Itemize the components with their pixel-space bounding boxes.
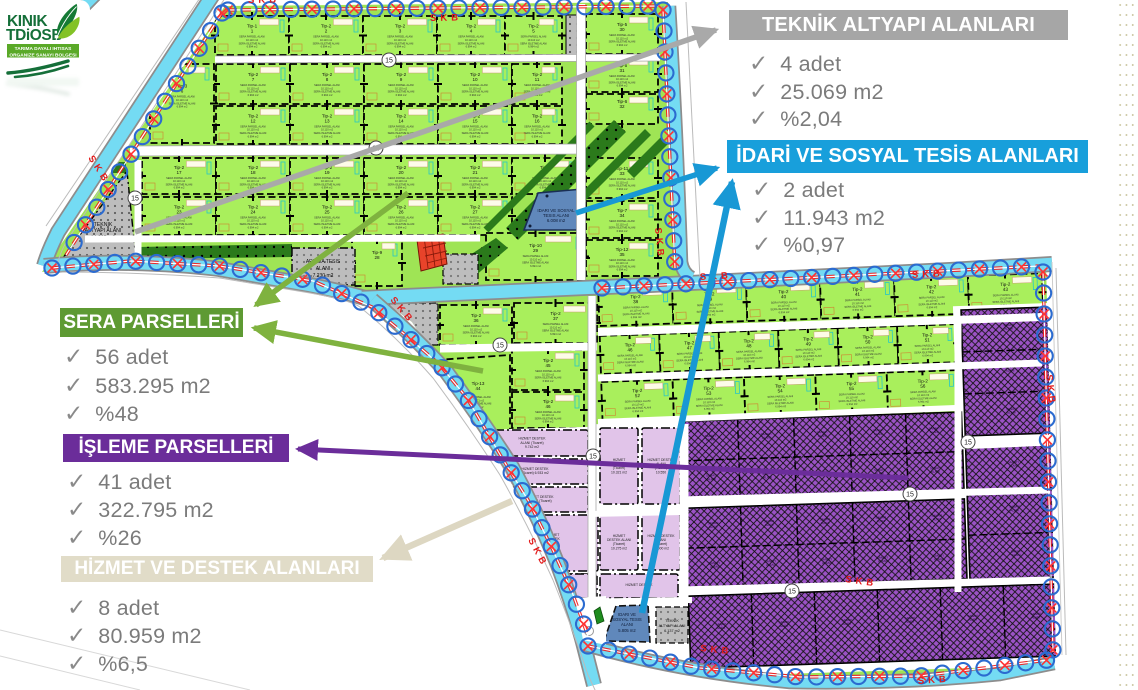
svg-text:17: 17 — [176, 170, 182, 175]
svg-text:ALANI: ALANI — [818, 434, 827, 438]
svg-text:56: 56 — [920, 384, 926, 389]
svg-text:54: 54 — [778, 388, 784, 393]
svg-text:6.994 m2: 6.994 m2 — [321, 45, 332, 49]
svg-text:6.994 m2: 6.994 m2 — [322, 93, 333, 97]
svg-text:ALANI: ALANI — [905, 619, 914, 623]
svg-text:ALANI: ALANI — [930, 430, 939, 434]
svg-text:6.994 m2: 6.994 m2 — [471, 334, 482, 338]
svg-text:6.994 m2: 6.994 m2 — [853, 307, 864, 311]
svg-text:6.994 m2: 6.994 m2 — [543, 420, 554, 424]
svg-text:15: 15 — [496, 343, 504, 350]
svg-text:9.742 m2: 9.742 m2 — [525, 445, 539, 449]
svg-text:46: 46 — [545, 404, 551, 409]
svg-text:SKB: SKB — [912, 268, 945, 281]
svg-text:6.994 m2: 6.994 m2 — [803, 357, 814, 361]
svg-text:43: 43 — [1003, 287, 1009, 292]
svg-text:15: 15 — [472, 118, 478, 123]
svg-text:6.994 m2: 6.994 m2 — [918, 399, 929, 403]
svg-text:10.321 m2: 10.321 m2 — [611, 470, 627, 474]
svg-text:6.994 m2: 6.994 m2 — [248, 93, 259, 97]
svg-text:6.994 m2: 6.994 m2 — [322, 186, 333, 190]
svg-text:ALANI: ALANI — [766, 563, 775, 567]
svg-text:6.994 m2: 6.994 m2 — [926, 305, 937, 309]
svg-text:6.994 m2: 6.994 m2 — [528, 45, 539, 49]
svg-text:6.137 m2: 6.137 m2 — [664, 629, 680, 633]
svg-text:ALANI: ALANI — [821, 521, 830, 525]
svg-text:ALANI: ALANI — [717, 626, 726, 630]
svg-text:ALTYAPI ALANI: ALTYAPI ALANI — [659, 624, 686, 628]
svg-text:34: 34 — [619, 213, 625, 218]
svg-text:ALANI: ALANI — [621, 622, 633, 627]
svg-text:6.994 m2: 6.994 m2 — [322, 225, 333, 229]
svg-text:ALANI: ALANI — [710, 565, 719, 569]
svg-text:30: 30 — [619, 27, 625, 32]
svg-text:10: 10 — [472, 77, 478, 82]
svg-text:6.994 m2: 6.994 m2 — [744, 359, 755, 363]
svg-text:ALANI: ALANI — [316, 266, 330, 272]
svg-text:9: 9 — [400, 77, 403, 82]
svg-text:36: 36 — [473, 318, 479, 323]
svg-text:49: 49 — [806, 341, 812, 346]
svg-text:6.994 m2: 6.994 m2 — [395, 45, 406, 49]
svg-text:7: 7 — [252, 77, 255, 82]
svg-text:ALANI: ALANI — [1004, 326, 1013, 330]
svg-text:SKB: SKB — [248, 0, 280, 6]
svg-text:42: 42 — [929, 289, 935, 294]
svg-text:5.805 m2: 5.805 m2 — [618, 628, 636, 633]
svg-text:ALANI: ALANI — [1010, 508, 1019, 512]
svg-text:(Ticaret) 6.933 m2: (Ticaret) 6.933 m2 — [521, 471, 549, 475]
svg-text:52: 52 — [635, 393, 641, 398]
svg-text:6.994 m2: 6.994 m2 — [625, 363, 636, 367]
svg-text:TDiOSB: TDiOSB — [6, 27, 62, 44]
svg-text:46: 46 — [627, 347, 633, 352]
svg-text:6.994 m2: 6.994 m2 — [863, 355, 874, 359]
svg-text:48: 48 — [746, 343, 752, 348]
svg-text:47: 47 — [687, 345, 693, 350]
svg-text:15: 15 — [589, 454, 597, 461]
svg-text:6.994 m2: 6.994 m2 — [631, 315, 642, 319]
svg-text:ALANI: ALANI — [933, 517, 942, 521]
svg-text:45: 45 — [545, 363, 551, 368]
svg-text:ALANI: ALANI — [877, 519, 886, 523]
svg-text:41: 41 — [855, 292, 861, 297]
svg-text:11: 11 — [535, 77, 540, 82]
svg-text:14: 14 — [398, 118, 404, 123]
svg-text:6.994 m2: 6.994 m2 — [174, 186, 185, 190]
svg-text:ALANI: ALANI — [706, 437, 715, 441]
svg-text:6.994 m2: 6.994 m2 — [617, 187, 628, 191]
svg-text:40: 40 — [781, 294, 787, 299]
svg-text:6.994 m2: 6.994 m2 — [532, 134, 543, 138]
svg-text:19: 19 — [324, 170, 330, 175]
svg-text:6.994 m2: 6.994 m2 — [617, 43, 628, 47]
svg-text:44: 44 — [475, 386, 481, 391]
svg-text:10.275 m2: 10.275 m2 — [611, 546, 627, 550]
svg-text:ALANI: ALANI — [1007, 410, 1016, 414]
svg-text:ALANI: ALANI — [1012, 553, 1021, 557]
svg-text:6.994 m2: 6.994 m2 — [470, 134, 481, 138]
svg-text:6.994 m2: 6.994 m2 — [466, 45, 477, 49]
svg-text:6.994 m2: 6.994 m2 — [617, 268, 628, 272]
svg-text:6.994 m2: 6.994 m2 — [632, 409, 643, 413]
svg-text:ALANI: ALANI — [762, 436, 771, 440]
svg-text:6.994 m2: 6.994 m2 — [470, 186, 481, 190]
svg-text:6.008 m2: 6.008 m2 — [547, 218, 566, 223]
svg-text:38: 38 — [633, 299, 639, 304]
svg-text:TARIMA DAYALI IHTISAS: TARIMA DAYALI IHTISAS — [15, 46, 72, 52]
svg-text:29: 29 — [533, 248, 539, 253]
svg-text:13: 13 — [324, 118, 330, 123]
svg-text:ALANI: ALANI — [763, 475, 772, 479]
svg-text:15: 15 — [131, 196, 139, 203]
svg-text:6.994 m2: 6.994 m2 — [396, 93, 407, 97]
svg-text:10.550: 10.550 — [656, 470, 666, 474]
svg-text:55: 55 — [849, 386, 855, 391]
svg-text:ALANI: ALANI — [931, 469, 940, 473]
svg-text:25: 25 — [324, 209, 330, 214]
svg-text:ALANI: ALANI — [1031, 615, 1040, 619]
svg-text:6.994 m2: 6.994 m2 — [543, 379, 554, 383]
svg-text:31: 31 — [619, 68, 625, 73]
svg-text:6.994 m2: 6.994 m2 — [704, 406, 715, 410]
svg-text:6.994 m2: 6.994 m2 — [248, 225, 259, 229]
svg-text:ALANI: ALANI — [822, 561, 831, 565]
svg-text:53: 53 — [706, 391, 712, 396]
svg-text:26: 26 — [398, 209, 404, 214]
svg-text:4: 4 — [470, 29, 473, 34]
svg-text:6.994 m2: 6.994 m2 — [775, 404, 786, 408]
svg-text:24: 24 — [250, 209, 256, 214]
svg-text:2: 2 — [325, 29, 328, 34]
svg-text:6.994 m2: 6.994 m2 — [922, 353, 933, 357]
svg-text:27: 27 — [472, 209, 478, 214]
svg-text:6.994 m2: 6.994 m2 — [550, 332, 561, 336]
svg-text:6.994 m2: 6.994 m2 — [530, 264, 541, 268]
svg-text:3: 3 — [399, 29, 402, 34]
svg-text:1: 1 — [251, 29, 254, 34]
svg-text:15: 15 — [788, 589, 796, 596]
svg-text:28: 28 — [374, 255, 380, 260]
svg-text:6.994 m2: 6.994 m2 — [396, 225, 407, 229]
svg-text:6.994 m2: 6.994 m2 — [174, 225, 185, 229]
svg-text:15: 15 — [385, 58, 393, 65]
svg-text:ALANI: ALANI — [934, 557, 943, 561]
svg-text:12: 12 — [250, 118, 256, 123]
svg-text:15: 15 — [906, 492, 914, 499]
svg-text:20: 20 — [398, 170, 404, 175]
svg-text:6.994 m2: 6.994 m2 — [322, 134, 333, 138]
svg-text:16: 16 — [534, 118, 540, 123]
svg-text:8: 8 — [326, 77, 329, 82]
svg-text:6.994 m2: 6.994 m2 — [847, 402, 858, 406]
svg-text:37: 37 — [553, 316, 559, 321]
svg-text:6.994 m2: 6.994 m2 — [396, 186, 407, 190]
svg-text:SKB: SKB — [917, 674, 950, 687]
svg-text:5: 5 — [532, 29, 535, 34]
svg-text:6.994 m2: 6.994 m2 — [247, 45, 258, 49]
svg-text:15: 15 — [964, 440, 972, 447]
svg-text:6.994 m2: 6.994 m2 — [779, 310, 790, 314]
svg-text:35: 35 — [619, 252, 625, 257]
svg-text:51: 51 — [925, 337, 931, 342]
svg-text:6.994 m2: 6.994 m2 — [617, 229, 628, 233]
svg-text:ALANI: ALANI — [1009, 464, 1018, 468]
svg-text:18: 18 — [250, 170, 256, 175]
svg-text:33: 33 — [619, 171, 625, 176]
svg-text:6.994 m2: 6.994 m2 — [617, 84, 628, 88]
svg-text:6.994 m2: 6.994 m2 — [248, 134, 259, 138]
svg-text:ORGANIZE SANAYI BOLGESI: ORGANIZE SANAYI BOLGESI — [9, 53, 77, 59]
svg-text:TEKNIK: TEKNIK — [665, 619, 679, 623]
svg-text:50: 50 — [865, 339, 871, 344]
svg-text:ALANI: ALANI — [765, 523, 774, 527]
svg-text:21: 21 — [472, 170, 478, 175]
svg-text:32: 32 — [619, 104, 625, 109]
svg-text:ALANI: ALANI — [1006, 368, 1015, 372]
svg-text:ALANI: ALANI — [968, 617, 977, 621]
svg-text:ALANI: ALANI — [874, 432, 883, 436]
svg-text:ALANI: ALANI — [843, 622, 852, 626]
svg-text:ALANI: ALANI — [707, 477, 716, 481]
svg-text:6.994 m2: 6.994 m2 — [470, 93, 481, 97]
svg-text:ALANI: ALANI — [709, 525, 718, 529]
svg-text:SKB: SKB — [430, 12, 462, 24]
svg-text:ALANI: ALANI — [878, 559, 887, 563]
svg-text:ALANI: ALANI — [780, 624, 789, 628]
svg-text:6.994 m2: 6.994 m2 — [470, 225, 481, 229]
